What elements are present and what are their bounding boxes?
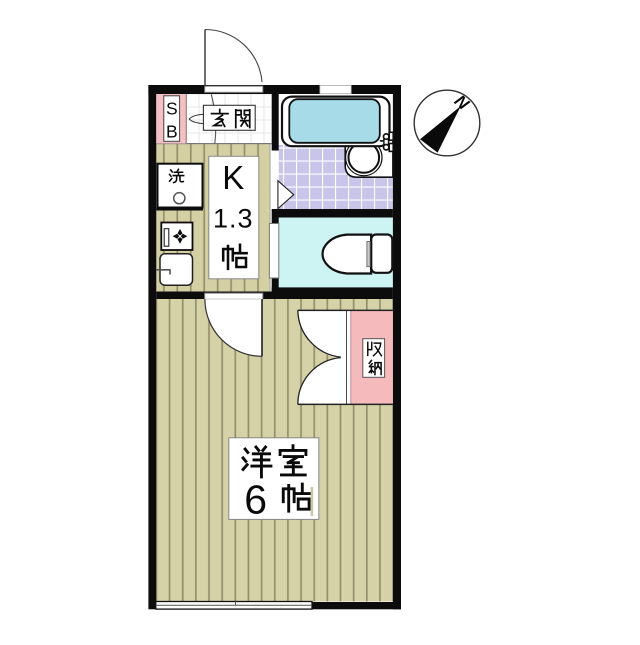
svg-text:1.3: 1.3 (213, 204, 254, 234)
svg-text:S: S (166, 99, 178, 119)
svg-text:K: K (222, 159, 244, 196)
svg-text:6: 6 (244, 477, 267, 523)
svg-text:B: B (166, 122, 178, 142)
